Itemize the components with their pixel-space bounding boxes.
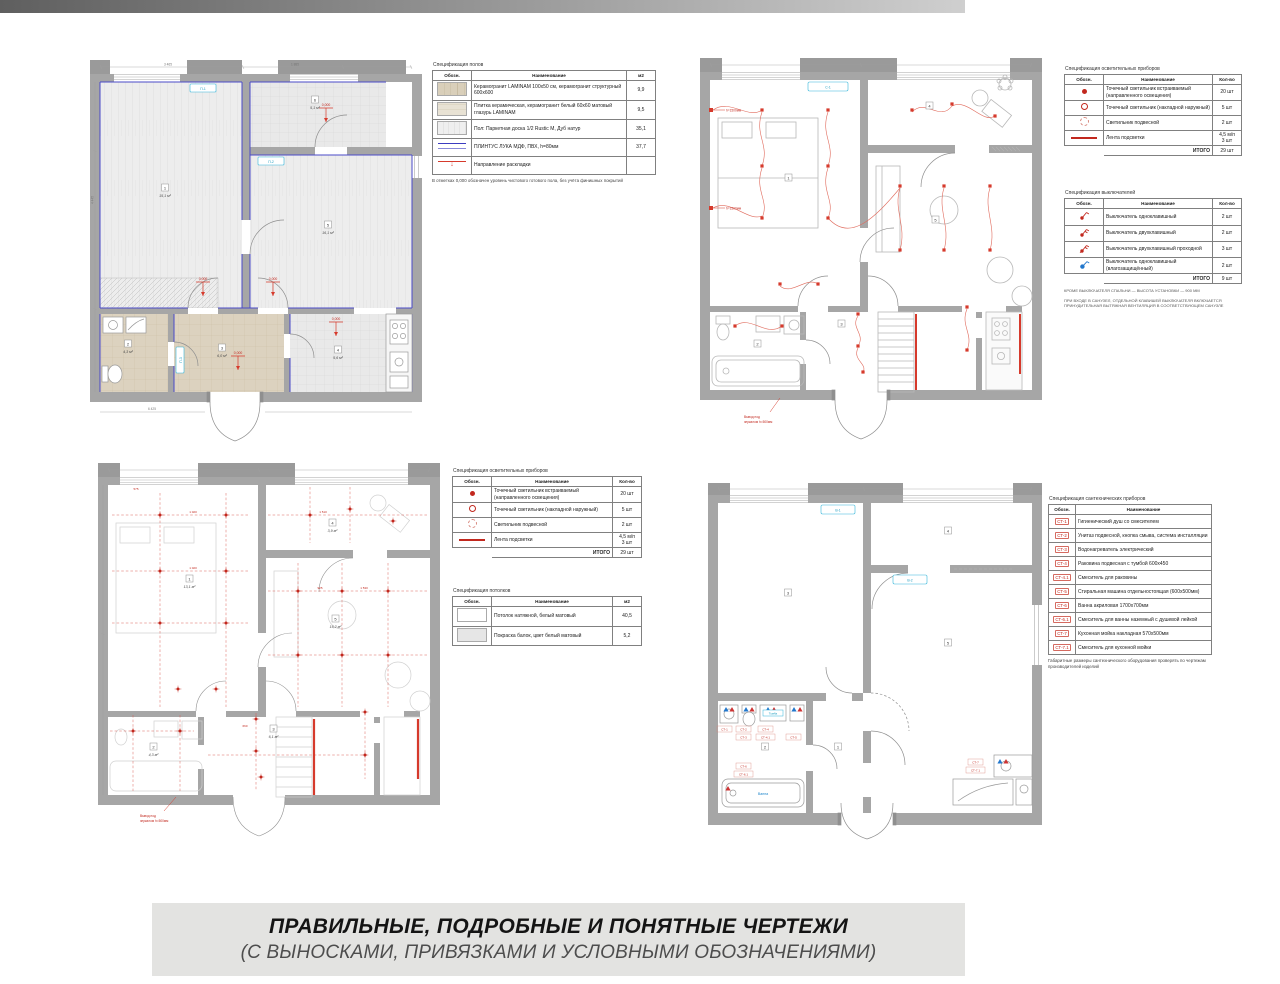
table-row: Пол: Паркетная доска 1/2 Rustic М, Дуб н…: [433, 119, 656, 138]
red-dim: 1 510: [319, 510, 327, 514]
table-row: Выключатель двухклавишный2 шт: [1065, 225, 1242, 241]
table-row: Лента подсветки4,5 м/п3 шт: [453, 532, 642, 548]
svg-text:Вывод под: Вывод под: [744, 415, 760, 419]
svg-text:СТ-4: СТ-4: [762, 728, 769, 732]
table-total-row: ИТОГО29 шт: [453, 548, 642, 558]
floor-finishes: [100, 82, 412, 392]
floors-spec-table: Спецификация половОбозн.Наименованием2Ке…: [432, 62, 656, 184]
svg-text:Вывод под: Вывод под: [140, 814, 156, 818]
table-row: СТ-3Водонагреватель электрический: [1049, 543, 1212, 557]
table-title: Спецификация выключателей: [1065, 190, 1242, 196]
table-header-row: Обозн.Наименованием2: [453, 597, 642, 607]
table-row: СТ-4Раковина подвесная с тумбой 600х450: [1049, 557, 1212, 571]
wiring-curves: [713, 104, 995, 372]
svg-text:h=1500мм: h=1500мм: [726, 109, 741, 113]
svg-text:В-2: В-2: [907, 579, 912, 583]
svg-text:П-3: П-3: [179, 357, 183, 363]
table-row: Выключатель одноклавишный2 шт: [1065, 209, 1242, 225]
svg-text:15,1 м²: 15,1 м²: [159, 194, 171, 198]
svg-text:зеркалом h=500мм: зеркалом h=500мм: [744, 420, 772, 424]
table-row: СТ-2Унитаз подвесной, кнопка смыва, сист…: [1049, 529, 1212, 543]
table-row: Керамогранит LAMINAM 100х50 см, керамогр…: [433, 81, 656, 100]
dim-label: 3 465: [164, 63, 172, 67]
caption-title: ПРАВИЛЬНЫЕ, ПОДРОБНЫЕ И ПОНЯТНЫЕ ЧЕРТЕЖИ: [269, 915, 848, 939]
svg-text:Тумба: Тумба: [769, 712, 778, 716]
hall-wardrobe: [878, 312, 914, 392]
table-note: Габаритные размеры сантехнического обору…: [1048, 658, 1212, 670]
svg-text:СТ-5: СТ-5: [790, 736, 797, 740]
table-row: СТ-6Ванна акриловая 1700х700мм: [1049, 599, 1212, 613]
mirror-callout: Вывод под зеркалом h=500мм: [744, 398, 780, 424]
table-row: ↓Направление раскладки: [433, 157, 656, 175]
svg-text:СТ-2: СТ-2: [740, 728, 747, 732]
table-title: Спецификация полов: [433, 62, 656, 68]
svg-text:0,000: 0,000: [332, 317, 341, 321]
table-row: Точечный светильник (накладной наружный)…: [453, 502, 642, 517]
ceilings-spec-table: Спецификация потолковОбозн.Наименованием…: [452, 588, 642, 646]
caption-subtitle: (С ВЫНОСКАМИ, ПРИВЯЗКАМИ И УСЛОВНЫМИ ОБО…: [241, 942, 877, 964]
table-header-row: Обозн.НаименованиеКол-во: [453, 477, 642, 487]
plan-tag: С-1: [808, 82, 848, 91]
svg-text:16,2 м²: 16,2 м²: [330, 625, 342, 629]
table-note: При входе в санузел, отдельной клавишей …: [1064, 298, 1242, 309]
sink: [756, 316, 780, 332]
floor-plan-plumbing: СТ-1 СТ-2 СТ-3 СТ-4 СТ-4.1 СТ-5 СТ-6 СТ-…: [708, 483, 1042, 843]
table-row: Выключатель двухклавишный проходной3 шт: [1065, 241, 1242, 257]
table-row: Покраска балок, цвет белый матовый5,2: [453, 626, 642, 645]
table-row: Выключатель одноклавишный (влагозащищённ…: [1065, 258, 1242, 274]
red-dim: 575: [133, 487, 138, 491]
red-dim: 925: [317, 586, 322, 590]
svg-text:0,000: 0,000: [234, 351, 243, 355]
svg-text:0,000: 0,000: [322, 103, 331, 107]
svg-text:П-2: П-2: [268, 160, 274, 164]
table-header-row: Обозн.Наименованием2: [433, 71, 656, 81]
table-title: Спецификация осветительных приборов: [453, 468, 642, 474]
svg-text:СТ-4.1: СТ-4.1: [761, 736, 770, 740]
layout-grid: [110, 487, 428, 791]
svg-text:СТ-1: СТ-1: [721, 728, 728, 732]
floor-plan-lighting: h=1500мм h=1500мм Вывод под зеркалом h=5…: [700, 58, 1042, 443]
table-row: Светильник подвесной2 шт: [1065, 115, 1242, 130]
table-total-row: ИТОГО29 шт: [1065, 146, 1242, 156]
dim-label: 4 445: [91, 196, 95, 204]
door-arcs: [196, 558, 353, 836]
window-glazing: [722, 75, 1020, 151]
svg-text:0,000: 0,000: [199, 277, 208, 281]
desk-chair: [972, 75, 1013, 127]
table-row: Точечный светильник встраиваемый (направ…: [453, 487, 642, 503]
table-note: Кроме выключателя спальни — высота устан…: [1064, 288, 1242, 293]
svg-text:СТ-3: СТ-3: [740, 736, 747, 740]
kitchen-fixtures: [386, 314, 412, 392]
bath-label: Ванна: [758, 792, 768, 796]
table-row: СТ-1Гигиенический душ со смесителем: [1049, 515, 1212, 529]
walls: [708, 483, 1042, 825]
svg-text:6,0 м²: 6,0 м²: [217, 354, 227, 358]
sofa: [876, 166, 900, 252]
svg-text:СТ-6: СТ-6: [740, 765, 747, 769]
table-row: Плитка керамическая, керамогранит белый …: [433, 100, 656, 119]
lighting-spec-table-2: Спецификация осветительных приборовОбозн…: [452, 468, 642, 558]
table-row: Точечный светильник встраиваемый (направ…: [1065, 85, 1242, 101]
plumbing-spec-table: Спецификация сантехнических приборовОбоз…: [1048, 496, 1212, 670]
svg-text:3,9 м²: 3,9 м²: [328, 529, 338, 533]
wall-sconces: h=1500мм h=1500мм: [709, 108, 741, 211]
svg-text:В-1: В-1: [835, 509, 840, 513]
svg-text:СТ-6.1: СТ-6.1: [739, 773, 748, 777]
caption-banner: ПРАВИЛЬНЫЕ, ПОДРОБНЫЕ И ПОНЯТНЫЕ ЧЕРТЕЖИ…: [152, 903, 965, 976]
toilet: [716, 316, 730, 340]
table-row: СТ-7.1Смеситель для кухонной мойки: [1049, 641, 1212, 655]
svg-text:П-1: П-1: [200, 87, 206, 91]
red-dim: 1 020: [189, 566, 197, 570]
table-row: СТ-5Стиральная машина отдельностоящая (6…: [1049, 585, 1212, 599]
table-header-row: Обозн.Наименование: [1049, 505, 1212, 515]
svg-text:16,1 м²: 16,1 м²: [322, 231, 334, 235]
svg-text:5,1 м²: 5,1 м²: [310, 106, 320, 110]
bed: [718, 118, 818, 228]
svg-text:0,000: 0,000: [269, 277, 278, 281]
wardrobe-hatch: [100, 278, 218, 308]
red-dim: 1 530: [360, 586, 368, 590]
armchairs: [987, 257, 1032, 306]
floor-plan-ceiling-dimensions: 575 1 020 1 020 925 1 510 1 530 660 Выво…: [98, 463, 443, 838]
lighting-spec-table: Спецификация осветительных приборовОбозн…: [1064, 66, 1242, 156]
floor-plan-finishes: 3 465 1 885 4 445 6 425 0,000 0,000 0,00…: [90, 60, 422, 445]
presentation-sheet: 3 465 1 885 4 445 6 425 0,000 0,000 0,00…: [0, 0, 1280, 984]
table-title: Спецификация потолков: [453, 588, 642, 594]
table-title: Спецификация осветительных приборов: [1065, 66, 1242, 72]
table-total-row: ИТОГО9 шт: [1065, 274, 1242, 284]
table-header-row: Обозн.НаименованиеКол-во: [1065, 75, 1242, 85]
svg-text:С-1: С-1: [825, 86, 831, 90]
bathtub: [712, 356, 804, 386]
table-row: Светильник подвесной2 шт: [453, 517, 642, 532]
red-dim: 1 020: [189, 510, 197, 514]
section-divider: [0, 0, 965, 13]
dim-label: 6 425: [148, 407, 156, 411]
fixture-codes: СТ-1 СТ-2 СТ-3 СТ-4 СТ-4.1 СТ-5 СТ-6 СТ-…: [717, 726, 985, 777]
table-row: Точечный светильник (накладной наружный)…: [1065, 100, 1242, 115]
kitchen-counter: [986, 312, 1022, 390]
table-row: СТ-6.1Смеситель для ванны наземный с душ…: [1049, 613, 1212, 627]
table-row: Потолок натяжной, белый матовый40,5: [453, 607, 642, 626]
svg-text:6,1 м²: 6,1 м²: [269, 735, 279, 739]
svg-text:4,3 м²: 4,3 м²: [123, 350, 133, 354]
cabinet-tag: Тумба: [763, 710, 783, 716]
svg-text:h=1500мм: h=1500мм: [726, 207, 741, 211]
led-strips: [314, 719, 418, 795]
svg-text:СТ-7.1: СТ-7.1: [971, 769, 980, 773]
furniture: [110, 495, 430, 797]
table-row: СТ-4.1Смеситель для раковины: [1049, 571, 1212, 585]
table-row: Лента подсветки4,5 м/п3 шт: [1065, 130, 1242, 146]
svg-text:5,6 м²: 5,6 м²: [333, 356, 343, 360]
svg-text:13,1 м²: 13,1 м²: [184, 585, 196, 589]
table-row: ПЛИНТУС ЛУКА МДФ, ПВХ, h=80мм37,7: [433, 139, 656, 157]
table-title: Спецификация сантехнических приборов: [1049, 496, 1212, 502]
switches-spec-table: Спецификация выключателейОбозн.Наименова…: [1064, 190, 1242, 308]
table-note: В отметках 0,000 обозначен уровень чисто…: [432, 178, 656, 184]
red-dim: 660: [242, 724, 247, 728]
svg-text:СТ-7: СТ-7: [972, 761, 979, 765]
svg-text:зеркалом h=500мм: зеркалом h=500мм: [140, 819, 168, 823]
svg-text:4,3 м²: 4,3 м²: [149, 753, 159, 757]
table-header-row: Обозн.НаименованиеКол-во: [1065, 199, 1242, 209]
door-arcs: [813, 573, 909, 839]
dim-label: 1 885: [291, 63, 299, 67]
table-row: СТ-7Кухонная мойка накладная 570х500мм: [1049, 627, 1212, 641]
